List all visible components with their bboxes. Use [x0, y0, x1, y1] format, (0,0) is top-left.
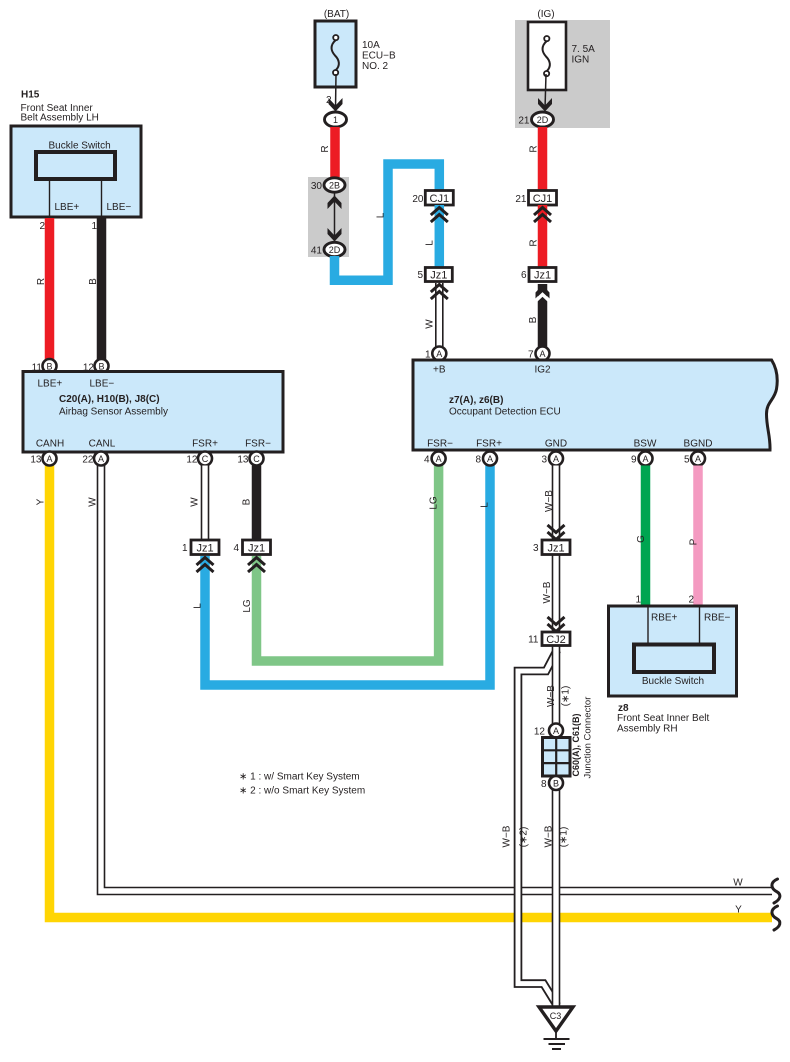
svg-text:W−B: W−B — [542, 581, 553, 603]
svg-text:2: 2 — [39, 221, 45, 232]
svg-text:RBE+: RBE+ — [651, 613, 678, 624]
svg-text:LBE−: LBE− — [107, 202, 132, 213]
svg-text:B: B — [98, 361, 104, 371]
svg-text:P: P — [689, 538, 700, 545]
svg-text:A: A — [642, 454, 648, 464]
svg-text:1: 1 — [91, 221, 97, 232]
svg-text:A: A — [695, 454, 701, 464]
svg-text:BSW: BSW — [634, 439, 657, 450]
svg-text:FSR+: FSR+ — [476, 439, 502, 450]
svg-text:LBE+: LBE+ — [38, 379, 63, 390]
svg-text:41: 41 — [311, 246, 323, 257]
svg-text:Jz1: Jz1 — [248, 543, 265, 555]
svg-text:∗ 1 : w/ Smart Key System: ∗ 1 : w/ Smart Key System — [239, 772, 360, 783]
svg-text:13: 13 — [30, 455, 42, 466]
svg-text:21: 21 — [515, 194, 527, 205]
svg-text:W: W — [425, 319, 436, 329]
svg-text:Front Seat Inner Belt: Front Seat Inner Belt — [617, 713, 709, 724]
svg-text:W: W — [88, 497, 99, 507]
svg-text:3: 3 — [541, 455, 547, 466]
svg-text:1: 1 — [635, 595, 641, 606]
svg-text:A: A — [436, 349, 442, 359]
svg-text:W−B: W−B — [544, 490, 555, 512]
svg-text:A: A — [553, 726, 559, 736]
svg-text:30: 30 — [311, 181, 323, 192]
svg-text:G: G — [636, 535, 647, 543]
svg-text:Jz1: Jz1 — [430, 270, 447, 282]
svg-text:W−B: W−B — [546, 685, 557, 707]
svg-text:CANL: CANL — [89, 439, 116, 450]
svg-text:R: R — [320, 145, 331, 152]
svg-text:C: C — [202, 454, 209, 464]
svg-text:W−B: W−B — [544, 825, 555, 847]
svg-text:(∗1): (∗1) — [561, 686, 572, 707]
svg-text:Occupant Detection ECU: Occupant Detection ECU — [449, 407, 561, 418]
svg-text:FSR+: FSR+ — [192, 439, 218, 450]
svg-text:FSR−: FSR− — [427, 439, 453, 450]
svg-text:ECU−B: ECU−B — [362, 51, 396, 62]
svg-text:H15: H15 — [21, 90, 40, 101]
svg-text:9: 9 — [631, 455, 637, 466]
svg-text:1: 1 — [182, 543, 188, 554]
svg-text:IGN: IGN — [572, 55, 590, 66]
svg-text:RBE−: RBE− — [704, 613, 731, 624]
svg-text:2: 2 — [688, 595, 694, 606]
svg-text:B: B — [528, 316, 539, 323]
svg-text:1: 1 — [333, 115, 338, 125]
svg-text:Assembly RH: Assembly RH — [617, 724, 678, 735]
svg-text:Airbag Sensor Assembly: Airbag Sensor Assembly — [59, 407, 168, 418]
svg-text:8: 8 — [475, 455, 481, 466]
svg-text:R: R — [36, 278, 47, 285]
svg-text:C20(A), H10(B), J8(C): C20(A), H10(B), J8(C) — [59, 394, 160, 405]
svg-text:Buckle Switch: Buckle Switch — [642, 676, 704, 687]
svg-text:A: A — [436, 454, 442, 464]
svg-text:+B: +B — [433, 365, 446, 376]
svg-text:2B: 2B — [329, 180, 340, 190]
svg-text:L: L — [425, 240, 436, 246]
svg-text:12: 12 — [186, 455, 198, 466]
svg-text:4: 4 — [424, 455, 430, 466]
svg-text:21: 21 — [518, 116, 530, 127]
svg-text:Jz1: Jz1 — [547, 543, 564, 555]
svg-text:C60(A), C61(B): C60(A), C61(B) — [571, 713, 581, 776]
svg-text:A: A — [46, 454, 52, 464]
svg-text:LG: LG — [429, 496, 440, 510]
svg-text:W: W — [190, 497, 201, 507]
svg-text:B: B — [242, 498, 253, 505]
svg-text:LG: LG — [242, 599, 253, 613]
svg-text:(BAT): (BAT) — [324, 9, 349, 20]
svg-text:Jz1: Jz1 — [534, 270, 551, 282]
svg-text:NO. 2: NO. 2 — [362, 61, 389, 72]
svg-text:R: R — [529, 239, 540, 246]
svg-text:A: A — [98, 454, 104, 464]
svg-text:10A: 10A — [362, 40, 380, 51]
svg-text:Y: Y — [36, 498, 47, 505]
svg-text:L: L — [480, 502, 491, 508]
svg-text:CANH: CANH — [36, 439, 64, 450]
svg-text:2D: 2D — [329, 245, 341, 255]
svg-text:LBE−: LBE− — [90, 379, 115, 390]
svg-text:13: 13 — [237, 455, 249, 466]
svg-text:22: 22 — [82, 455, 94, 466]
svg-text:Y: Y — [735, 905, 742, 916]
svg-text:3: 3 — [533, 543, 539, 554]
svg-text:L: L — [193, 603, 204, 609]
svg-text:CJ1: CJ1 — [533, 193, 553, 205]
svg-text:z7(A), z6(B): z7(A), z6(B) — [449, 395, 503, 406]
svg-text:A: A — [553, 454, 559, 464]
svg-text:FSR−: FSR− — [245, 439, 271, 450]
svg-text:CJ2: CJ2 — [546, 634, 566, 646]
svg-text:A: A — [487, 454, 493, 464]
svg-text:∗ 2 : w/o Smart Key System: ∗ 2 : w/o Smart Key System — [239, 786, 365, 797]
svg-text:7. 5A: 7. 5A — [572, 44, 596, 55]
svg-text:LBE+: LBE+ — [55, 202, 80, 213]
svg-text:(IG): (IG) — [537, 9, 554, 20]
svg-text:4: 4 — [233, 543, 239, 554]
svg-text:Junction Connector: Junction Connector — [583, 697, 594, 779]
svg-text:2D: 2D — [537, 115, 549, 125]
svg-text:GND: GND — [545, 439, 567, 450]
svg-text:W: W — [733, 878, 743, 889]
svg-text:R: R — [529, 145, 540, 152]
svg-text:5: 5 — [417, 270, 423, 281]
svg-text:6: 6 — [521, 270, 527, 281]
svg-text:C3: C3 — [550, 1011, 562, 1021]
svg-text:L: L — [376, 212, 387, 218]
svg-text:8: 8 — [541, 779, 547, 790]
svg-text:Jz1: Jz1 — [196, 543, 213, 555]
svg-text:(∗2): (∗2) — [519, 827, 530, 848]
svg-text:12: 12 — [534, 727, 546, 738]
svg-text:C: C — [253, 454, 260, 464]
svg-text:B: B — [553, 778, 559, 788]
svg-text:Buckle Switch: Buckle Switch — [49, 141, 111, 152]
svg-text:B: B — [88, 278, 99, 285]
svg-text:IG2: IG2 — [534, 365, 551, 376]
svg-text:CJ1: CJ1 — [430, 193, 450, 205]
svg-text:Belt Assembly LH: Belt Assembly LH — [21, 113, 99, 124]
svg-text:A: A — [539, 349, 545, 359]
svg-text:(∗1): (∗1) — [559, 827, 570, 848]
svg-text:W−B: W−B — [502, 825, 513, 847]
svg-text:5: 5 — [684, 455, 690, 466]
svg-text:BGND: BGND — [684, 439, 713, 450]
svg-text:11: 11 — [528, 635, 539, 646]
svg-text:B: B — [46, 361, 52, 371]
svg-text:20: 20 — [412, 194, 424, 205]
